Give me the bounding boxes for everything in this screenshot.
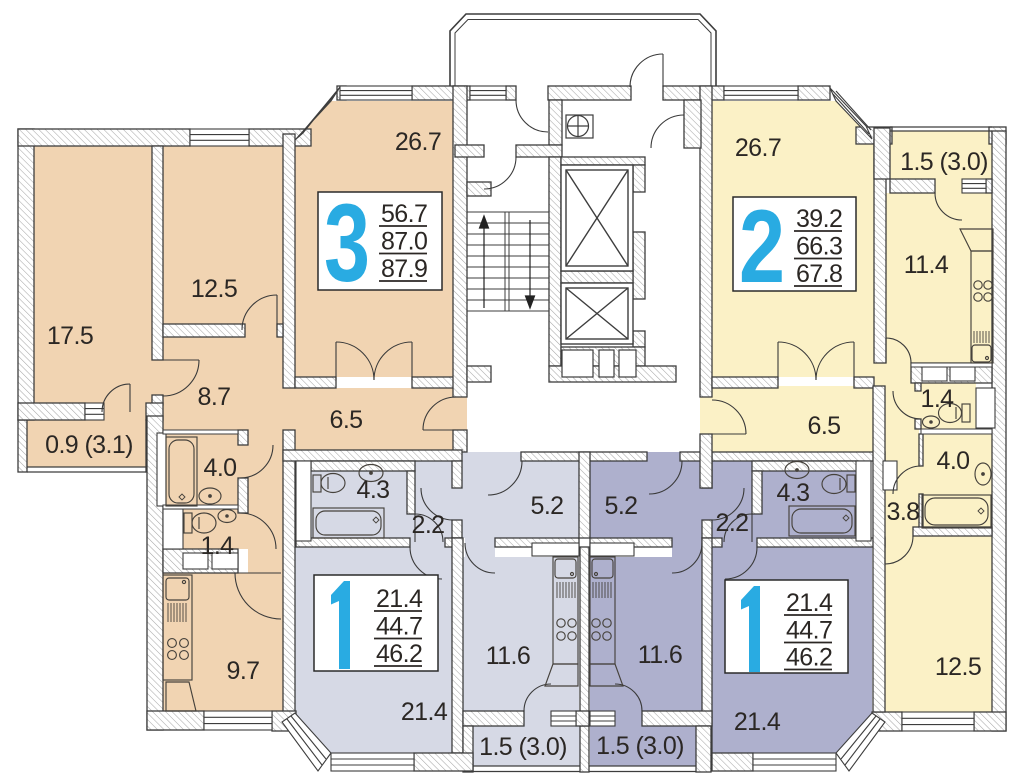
svg-text:56.7: 56.7: [381, 200, 427, 228]
svg-text:3: 3: [324, 182, 370, 305]
svg-text:8.7: 8.7: [198, 383, 231, 411]
svg-text:4.3: 4.3: [777, 479, 810, 507]
svg-text:6.5: 6.5: [808, 412, 841, 440]
svg-text:21.4: 21.4: [734, 708, 781, 736]
svg-text:87.0: 87.0: [381, 228, 427, 256]
svg-text:11.6: 11.6: [486, 642, 530, 670]
svg-text:2: 2: [739, 189, 785, 305]
svg-text:1.5 (3.0): 1.5 (3.0): [479, 733, 567, 761]
svg-text:46.2: 46.2: [376, 640, 422, 668]
svg-text:44.7: 44.7: [786, 617, 832, 645]
svg-text:1.5 (3.0): 1.5 (3.0): [900, 148, 988, 176]
svg-text:4.3: 4.3: [357, 476, 390, 504]
svg-text:44.7: 44.7: [376, 613, 422, 641]
svg-text:2.2: 2.2: [716, 509, 749, 537]
svg-text:1.5 (3.0): 1.5 (3.0): [596, 732, 684, 760]
svg-text:21.4: 21.4: [401, 698, 448, 726]
svg-text:5.2: 5.2: [531, 492, 564, 520]
svg-text:9.7: 9.7: [227, 657, 260, 685]
svg-text:2.2: 2.2: [412, 511, 445, 539]
svg-text:26.7: 26.7: [395, 128, 441, 156]
svg-text:67.8: 67.8: [796, 260, 842, 288]
svg-text:87.9: 87.9: [381, 255, 427, 283]
svg-text:4.0: 4.0: [204, 454, 237, 482]
svg-text:11.4: 11.4: [904, 251, 949, 279]
svg-text:1.4: 1.4: [921, 385, 955, 413]
svg-text:1.4: 1.4: [201, 532, 235, 560]
svg-text:5.2: 5.2: [605, 492, 638, 520]
svg-text:17.5: 17.5: [47, 322, 93, 350]
svg-text:0.9 (3.1): 0.9 (3.1): [45, 431, 133, 459]
svg-text:26.7: 26.7: [735, 134, 781, 162]
svg-text:11.6: 11.6: [638, 641, 682, 669]
svg-text:66.3: 66.3: [796, 233, 842, 261]
svg-text:39.2: 39.2: [796, 205, 842, 233]
svg-text:21.4: 21.4: [786, 589, 833, 617]
svg-text:12.5: 12.5: [935, 653, 981, 681]
svg-text:12.5: 12.5: [191, 275, 237, 303]
svg-text:3.8: 3.8: [887, 498, 920, 526]
svg-text:4.0: 4.0: [937, 447, 970, 475]
svg-text:21.4: 21.4: [376, 585, 423, 613]
svg-text:6.5: 6.5: [330, 406, 363, 434]
svg-text:46.2: 46.2: [786, 644, 832, 672]
